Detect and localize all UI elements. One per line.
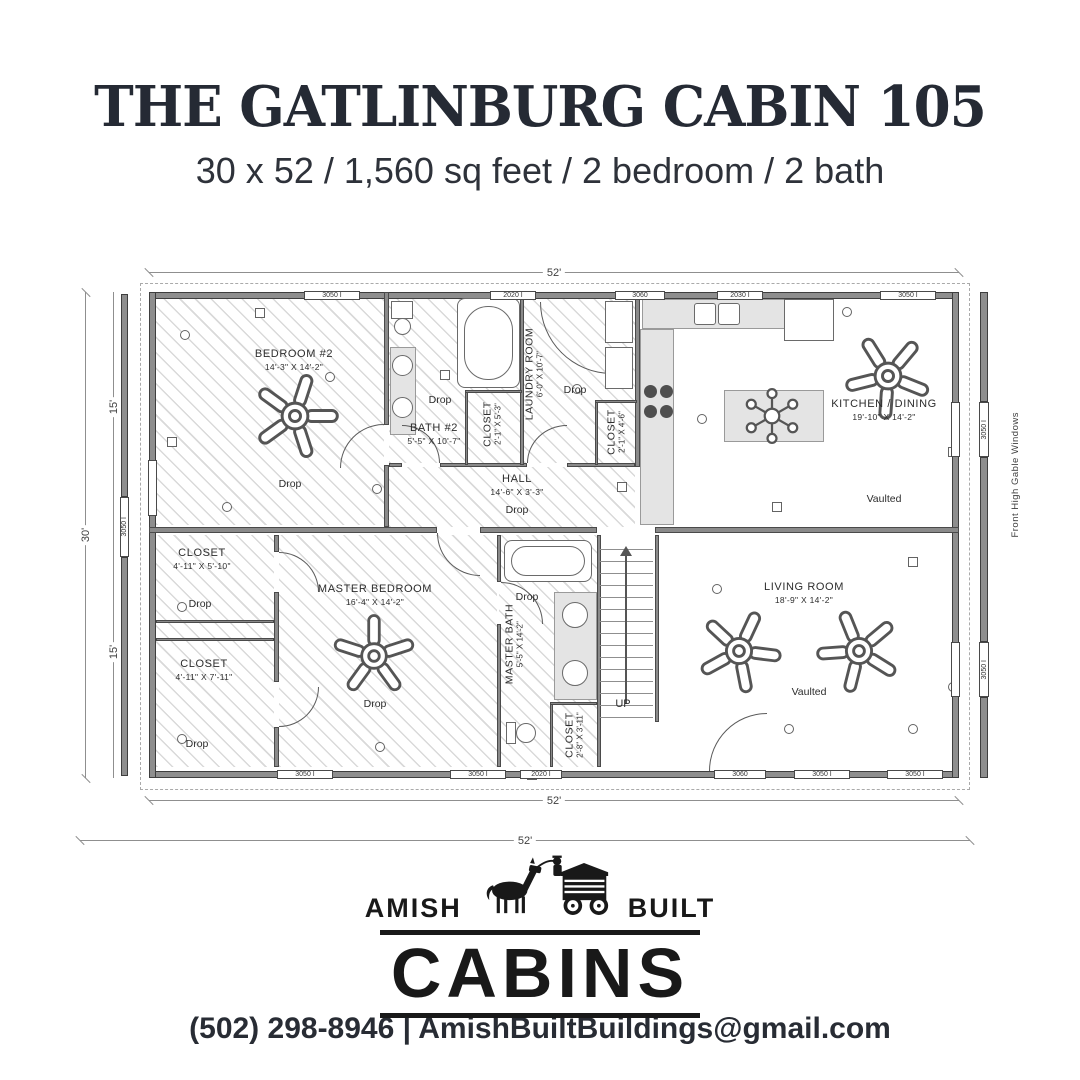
room-label-kitchen: KITCHEN / DINING19'-10" X 14'-2" bbox=[831, 398, 937, 422]
ceiling-fan-icon bbox=[330, 612, 418, 700]
logo-word-amish: AMISH bbox=[365, 893, 462, 924]
gable-wall bbox=[980, 457, 988, 642]
exterior-wall-top bbox=[149, 292, 959, 299]
room-note: Drop bbox=[516, 591, 539, 603]
window-label: 3050 I bbox=[304, 291, 360, 300]
ceiling-fan-icon bbox=[814, 606, 904, 696]
closet-wall bbox=[465, 390, 522, 393]
closet-shelf bbox=[156, 638, 274, 641]
toilet-icon bbox=[506, 722, 516, 744]
gable-windows-note: Front High Gable Windows bbox=[1010, 412, 1021, 702]
gable-wall bbox=[980, 292, 988, 402]
room-label-laundry: LAUNDRY ROOM6'-0" X 10'-7" bbox=[524, 328, 557, 421]
window-label: 3050 I bbox=[450, 770, 506, 779]
logo-word-built: BUILT bbox=[628, 893, 715, 924]
kitchen-counter bbox=[640, 329, 674, 525]
floor-plan: 52' 52' 52' 30' 15' 15' 3050 I 3050 I 30… bbox=[72, 252, 1012, 852]
washer-icon bbox=[605, 301, 633, 343]
ceiling-fan-icon bbox=[694, 606, 784, 696]
closet-col-wall bbox=[274, 535, 279, 552]
window-gap bbox=[951, 642, 960, 697]
room-label-master-bedroom: MASTER BEDROOM16'-4" X 14'-2" bbox=[318, 583, 432, 607]
page-title: THE GATLINBURG CABIN 105 bbox=[27, 74, 1053, 140]
closet-wall bbox=[550, 702, 597, 705]
room-label-living: LIVING ROOM18'-9" X 14'-2" bbox=[764, 581, 844, 605]
window-label: 3060 bbox=[615, 291, 665, 300]
closet-wall bbox=[550, 702, 553, 767]
room-note: Vaulted bbox=[792, 686, 827, 698]
closet-shelf bbox=[156, 620, 274, 623]
room-label-closet-bath: CLOSET2'-1" X 5'-3" bbox=[482, 401, 503, 447]
horse-and-buggy-icon bbox=[470, 850, 620, 928]
room-label-closet-lower: CLOSET4'-11" X 7'-11" bbox=[176, 658, 233, 682]
sink-icon bbox=[562, 602, 588, 628]
room-label-master-bath: MASTER BATH5'-5" X 14'-2" bbox=[504, 604, 537, 685]
exterior-wall-left bbox=[149, 292, 156, 778]
room-label-bath2: BATH #25'-5" X 10'-7" bbox=[407, 422, 460, 446]
closet-wall bbox=[465, 390, 468, 465]
room-note: Drop bbox=[189, 598, 212, 610]
stairs-up-label: UP bbox=[615, 698, 630, 710]
dim-label-left-lower: 15' bbox=[108, 642, 120, 662]
window-label: 2020 I bbox=[520, 770, 562, 779]
bedroom2-wall bbox=[384, 292, 389, 425]
window-gap bbox=[148, 460, 157, 516]
room-label-closet-upper: CLOSET4'-11" X 5'-10" bbox=[173, 547, 231, 571]
window-gap bbox=[951, 402, 960, 457]
logo-rule bbox=[380, 1013, 700, 1018]
window-label: 3050 I bbox=[120, 497, 129, 557]
bedroom2-wall bbox=[384, 465, 389, 527]
gable-wall bbox=[980, 697, 988, 778]
master-bath-wall bbox=[497, 535, 501, 582]
room-note: Vaulted bbox=[867, 493, 902, 505]
sink-icon bbox=[562, 660, 588, 686]
window-label: 2020 I bbox=[490, 291, 536, 300]
bathtub-icon bbox=[464, 306, 513, 380]
door-label: 3060 bbox=[714, 770, 766, 779]
logo-word-cabins: CABINS bbox=[391, 938, 689, 1008]
window-label: 3050 I bbox=[979, 642, 989, 697]
hall-wall bbox=[567, 463, 635, 467]
dim-label-top: 52' bbox=[543, 267, 565, 279]
room-note: Drop bbox=[364, 698, 387, 710]
left-deck-wall bbox=[121, 294, 128, 497]
window-label: 2030 I bbox=[717, 291, 763, 300]
fridge-icon bbox=[784, 299, 834, 341]
dim-label-bottom: 52' bbox=[543, 795, 565, 807]
room-label-closet-mbath: CLOSET2'-8" X 3'-11" bbox=[564, 712, 585, 758]
dryer-icon bbox=[605, 347, 633, 389]
room-note: Drop bbox=[564, 384, 587, 396]
left-deck-wall bbox=[121, 557, 128, 776]
dim-label-bottom2: 52' bbox=[514, 835, 536, 847]
mid-wall bbox=[655, 527, 959, 533]
master-bath-wall bbox=[497, 624, 501, 767]
closet-wall bbox=[595, 400, 598, 465]
sink-icon bbox=[392, 397, 413, 418]
closet-col-wall bbox=[274, 727, 279, 767]
room-note: Drop bbox=[506, 504, 529, 516]
toilet-icon bbox=[394, 318, 411, 335]
kitchen-sink-icon bbox=[718, 303, 740, 325]
hall-wall bbox=[389, 463, 402, 467]
room-note: Drop bbox=[279, 478, 302, 490]
page-subtitle: 30 x 52 / 1,560 sq feet / 2 bedroom / 2 … bbox=[0, 150, 1080, 192]
stairs-arrow-head bbox=[620, 546, 632, 556]
dim-label-left-total: 30' bbox=[80, 525, 92, 545]
bathtub-icon bbox=[511, 546, 585, 576]
toilet-icon bbox=[391, 301, 413, 319]
window-label: 3050 I bbox=[887, 770, 943, 779]
window-label: 3050 I bbox=[880, 291, 936, 300]
room-note: Drop bbox=[186, 738, 209, 750]
dim-label-left-upper: 15' bbox=[108, 397, 120, 417]
hall-wall bbox=[440, 463, 527, 467]
stairs-arrow bbox=[625, 552, 627, 704]
mid-wall bbox=[149, 527, 437, 533]
room-label-closet-laundry: CLOSET2'-1" X 4'-6" bbox=[606, 409, 627, 455]
company-logo: AMISH bbox=[0, 850, 1080, 1020]
ceiling-fan-icon bbox=[249, 370, 341, 462]
mid-wall bbox=[480, 527, 597, 533]
exterior-wall-right bbox=[952, 292, 959, 778]
closet-col-wall bbox=[274, 592, 279, 682]
window-label: 3050 I bbox=[979, 402, 989, 457]
stairs-wall bbox=[655, 535, 659, 722]
window-label: 3050 I bbox=[277, 770, 333, 779]
room-label-hall: HALL14'-6" X 3'-3" bbox=[490, 473, 543, 497]
toilet-icon bbox=[516, 723, 536, 743]
kitchen-sink-icon bbox=[694, 303, 716, 325]
room-note: Drop bbox=[429, 394, 452, 406]
closet-wall bbox=[595, 400, 637, 403]
sink-icon bbox=[392, 355, 413, 376]
window-label: 3050 I bbox=[794, 770, 850, 779]
room-label-bedroom2: BEDROOM #214'-3" X 14'-2" bbox=[255, 348, 333, 372]
dining-table-icon bbox=[744, 388, 800, 444]
